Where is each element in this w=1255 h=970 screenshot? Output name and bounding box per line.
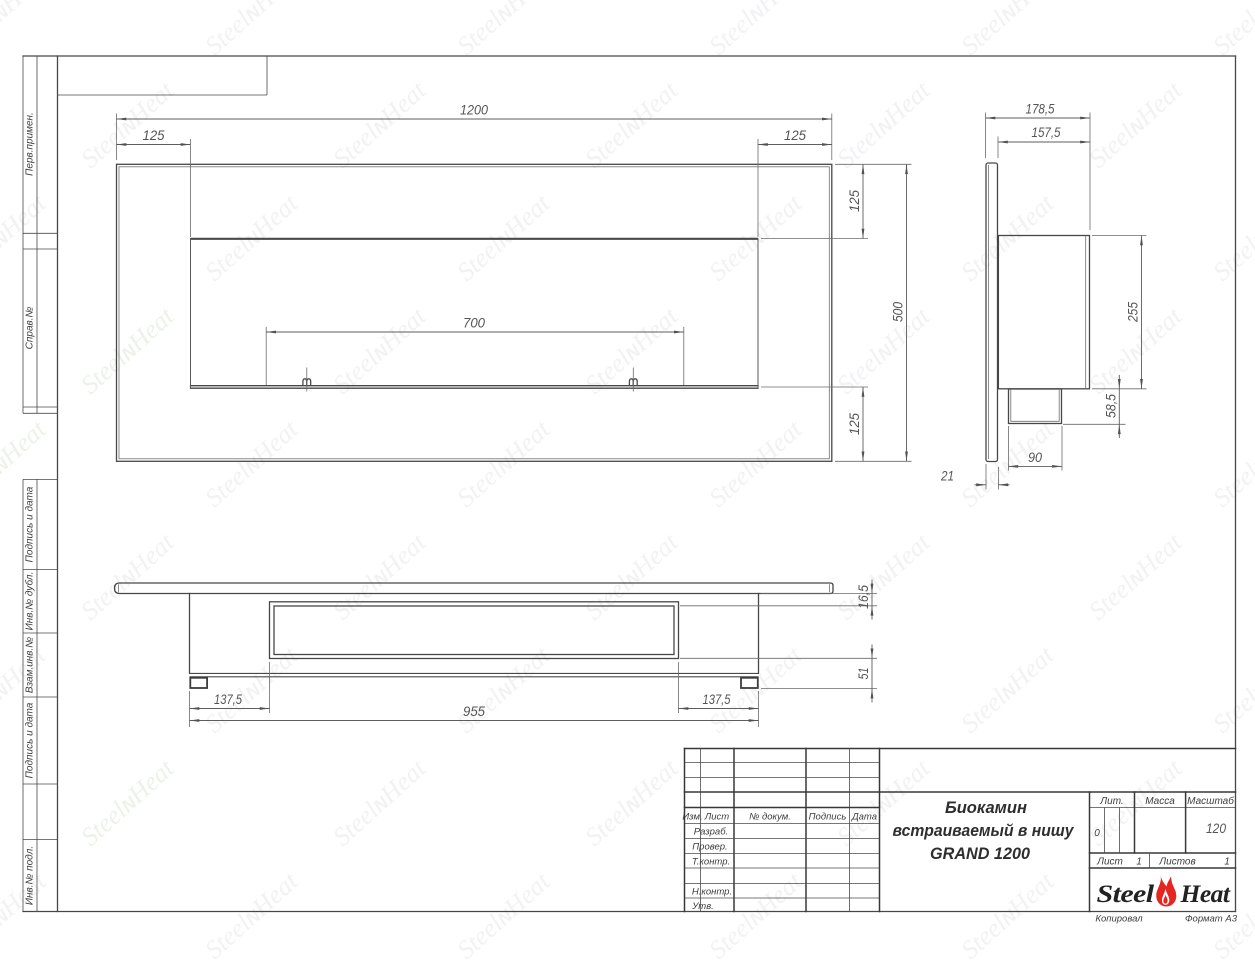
- svg-text:SteelNHeat: SteelNHeat: [955, 0, 1060, 61]
- svg-text:125: 125: [846, 413, 862, 435]
- svg-text:SteelNHeat: SteelNHeat: [75, 753, 180, 851]
- svg-text:Лист: Лист: [1096, 857, 1123, 868]
- svg-text:255: 255: [1125, 302, 1141, 323]
- svg-text:Формат А3: Формат А3: [1185, 914, 1238, 925]
- svg-text:Подпись и дата: Подпись и дата: [25, 702, 36, 778]
- svg-text:SteelNHeat: SteelNHeat: [327, 75, 432, 173]
- svg-text:Листов: Листов: [1158, 857, 1195, 868]
- svg-text:SteelNHeat: SteelNHeat: [0, 0, 52, 61]
- svg-text:SteelNHeat: SteelNHeat: [955, 640, 1060, 738]
- svg-text:SteelNHeat: SteelNHeat: [831, 75, 936, 173]
- svg-text:SteelNHeat: SteelNHeat: [75, 75, 180, 173]
- svg-text:встраиваемый в нишу: встраиваемый в нишу: [893, 822, 1075, 840]
- svg-text:SteelNHeat: SteelNHeat: [955, 866, 1060, 964]
- svg-text:SteelNHeat: SteelNHeat: [199, 414, 304, 512]
- svg-text:Перв.примен.: Перв.примен.: [25, 112, 36, 176]
- svg-text:500: 500: [890, 302, 906, 322]
- svg-text:SteelNHeat: SteelNHeat: [1083, 527, 1188, 625]
- svg-text:SteelNHeat: SteelNHeat: [327, 527, 432, 625]
- svg-text:Копировал: Копировал: [1095, 914, 1143, 925]
- svg-text:125: 125: [784, 127, 806, 143]
- svg-text:SteelNHeat: SteelNHeat: [579, 527, 684, 625]
- svg-text:SteelNHeat: SteelNHeat: [1207, 188, 1255, 286]
- svg-text:Лист: Лист: [704, 812, 730, 823]
- svg-text:21: 21: [940, 468, 954, 484]
- svg-text:SteelNHeat: SteelNHeat: [579, 753, 684, 851]
- svg-text:0: 0: [1094, 828, 1100, 839]
- svg-text:Подпись и дата: Подпись и дата: [25, 486, 36, 562]
- svg-text:SteelNHeat: SteelNHeat: [199, 188, 304, 286]
- svg-text:SteelNHeat: SteelNHeat: [451, 866, 556, 964]
- svg-text:SteelNHeat: SteelNHeat: [703, 866, 808, 964]
- svg-text:SteelNHeat: SteelNHeat: [955, 414, 1060, 512]
- svg-text:SteelNHeat: SteelNHeat: [327, 753, 432, 851]
- svg-text:SteelNHeat: SteelNHeat: [199, 866, 304, 964]
- svg-text:Разраб.: Разраб.: [694, 827, 728, 838]
- svg-text:SteelNHeat: SteelNHeat: [0, 188, 52, 286]
- svg-text:Взам.инв.№: Взам.инв.№: [25, 637, 36, 693]
- svg-text:SteelNHeat: SteelNHeat: [579, 301, 684, 399]
- svg-text:SteelNHeat: SteelNHeat: [1083, 75, 1188, 173]
- svg-text:51: 51: [855, 668, 871, 680]
- svg-text:№ докум.: № докум.: [749, 812, 791, 823]
- svg-text:SteelNHeat: SteelNHeat: [327, 301, 432, 399]
- svg-text:Масса: Масса: [1145, 796, 1175, 807]
- svg-text:SteelNHeat: SteelNHeat: [703, 640, 808, 738]
- svg-text:137,5: 137,5: [703, 691, 731, 707]
- svg-text:58,5: 58,5: [1103, 394, 1119, 418]
- svg-text:SteelNHeat: SteelNHeat: [703, 0, 808, 61]
- svg-text:SteelNHeat: SteelNHeat: [451, 414, 556, 512]
- svg-text:Инв.№ дубл.: Инв.№ дубл.: [24, 572, 36, 631]
- svg-text:Биокамин: Биокамин: [945, 799, 1027, 817]
- svg-text:Steel: Steel: [1097, 881, 1155, 908]
- svg-text:GRAND 1200: GRAND 1200: [930, 845, 1031, 863]
- svg-text:SteelNHeat: SteelNHeat: [703, 188, 808, 286]
- svg-text:16,5: 16,5: [855, 585, 871, 609]
- svg-text:Изм.: Изм.: [682, 812, 702, 823]
- svg-text:Heat: Heat: [1179, 881, 1231, 908]
- svg-text:178,5: 178,5: [1026, 101, 1055, 117]
- svg-text:SteelNHeat: SteelNHeat: [1207, 0, 1255, 61]
- svg-text:Т.контр.: Т.контр.: [692, 857, 730, 868]
- svg-text:1: 1: [1136, 857, 1142, 868]
- svg-text:1200: 1200: [460, 102, 488, 118]
- svg-text:SteelNHeat: SteelNHeat: [451, 0, 556, 61]
- svg-text:Инв.№ подл.: Инв.№ подл.: [25, 846, 36, 905]
- svg-text:SteelNHeat: SteelNHeat: [75, 527, 180, 625]
- svg-text:Подпись: Подпись: [809, 812, 847, 823]
- svg-text:Утв.: Утв.: [691, 901, 714, 912]
- svg-text:120: 120: [1206, 820, 1226, 836]
- svg-text:157,5: 157,5: [1032, 124, 1061, 140]
- svg-text:SteelNHeat: SteelNHeat: [199, 0, 304, 61]
- svg-text:SteelNHeat: SteelNHeat: [703, 414, 808, 512]
- svg-text:Лит.: Лит.: [1099, 796, 1123, 807]
- svg-text:Масштаб: Масштаб: [1187, 795, 1234, 807]
- svg-text:137,5: 137,5: [214, 691, 242, 707]
- svg-text:Н.контр.: Н.контр.: [692, 887, 732, 898]
- svg-text:700: 700: [463, 315, 485, 331]
- svg-text:Дата: Дата: [851, 812, 877, 823]
- svg-text:SteelNHeat: SteelNHeat: [1207, 640, 1255, 738]
- svg-text:SteelNHeat: SteelNHeat: [1207, 414, 1255, 512]
- svg-text:SteelNHeat: SteelNHeat: [831, 527, 936, 625]
- svg-text:Справ.№: Справ.№: [25, 306, 36, 349]
- svg-text:SteelNHeat: SteelNHeat: [831, 301, 936, 399]
- svg-text:125: 125: [846, 190, 862, 212]
- svg-text:SteelNHeat: SteelNHeat: [75, 301, 180, 399]
- svg-text:Провер.: Провер.: [692, 842, 727, 853]
- svg-text:90: 90: [1028, 449, 1042, 465]
- svg-text:955: 955: [463, 703, 485, 719]
- svg-text:SteelNHeat: SteelNHeat: [955, 188, 1060, 286]
- svg-text:SteelNHeat: SteelNHeat: [451, 188, 556, 286]
- svg-text:125: 125: [143, 127, 165, 143]
- svg-text:1: 1: [1224, 857, 1230, 868]
- svg-text:SteelNHeat: SteelNHeat: [579, 75, 684, 173]
